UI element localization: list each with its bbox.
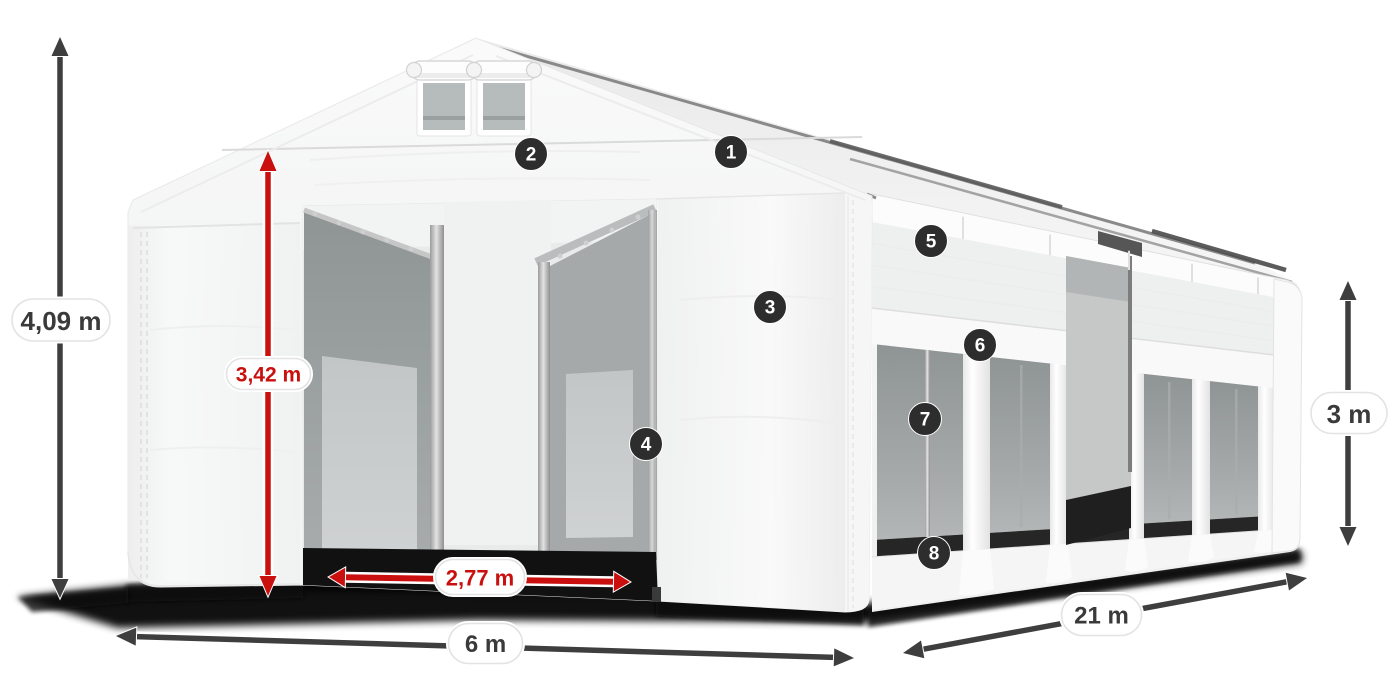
svg-text:8: 8 [929,544,940,565]
svg-text:3,42 m: 3,42 m [236,364,301,387]
svg-text:6 m: 6 m [465,631,506,658]
svg-text:3: 3 [765,298,776,319]
svg-text:5: 5 [926,232,937,253]
svg-text:1: 1 [726,143,737,164]
svg-text:4: 4 [641,435,652,456]
svg-text:6: 6 [975,336,986,357]
svg-text:21 m: 21 m [1074,603,1129,630]
svg-text:7: 7 [920,410,931,431]
svg-text:3 m: 3 m [1327,399,1372,429]
svg-text:2,77 m: 2,77 m [446,566,515,591]
svg-text:4,09 m: 4,09 m [21,306,102,336]
svg-text:2: 2 [526,145,537,166]
